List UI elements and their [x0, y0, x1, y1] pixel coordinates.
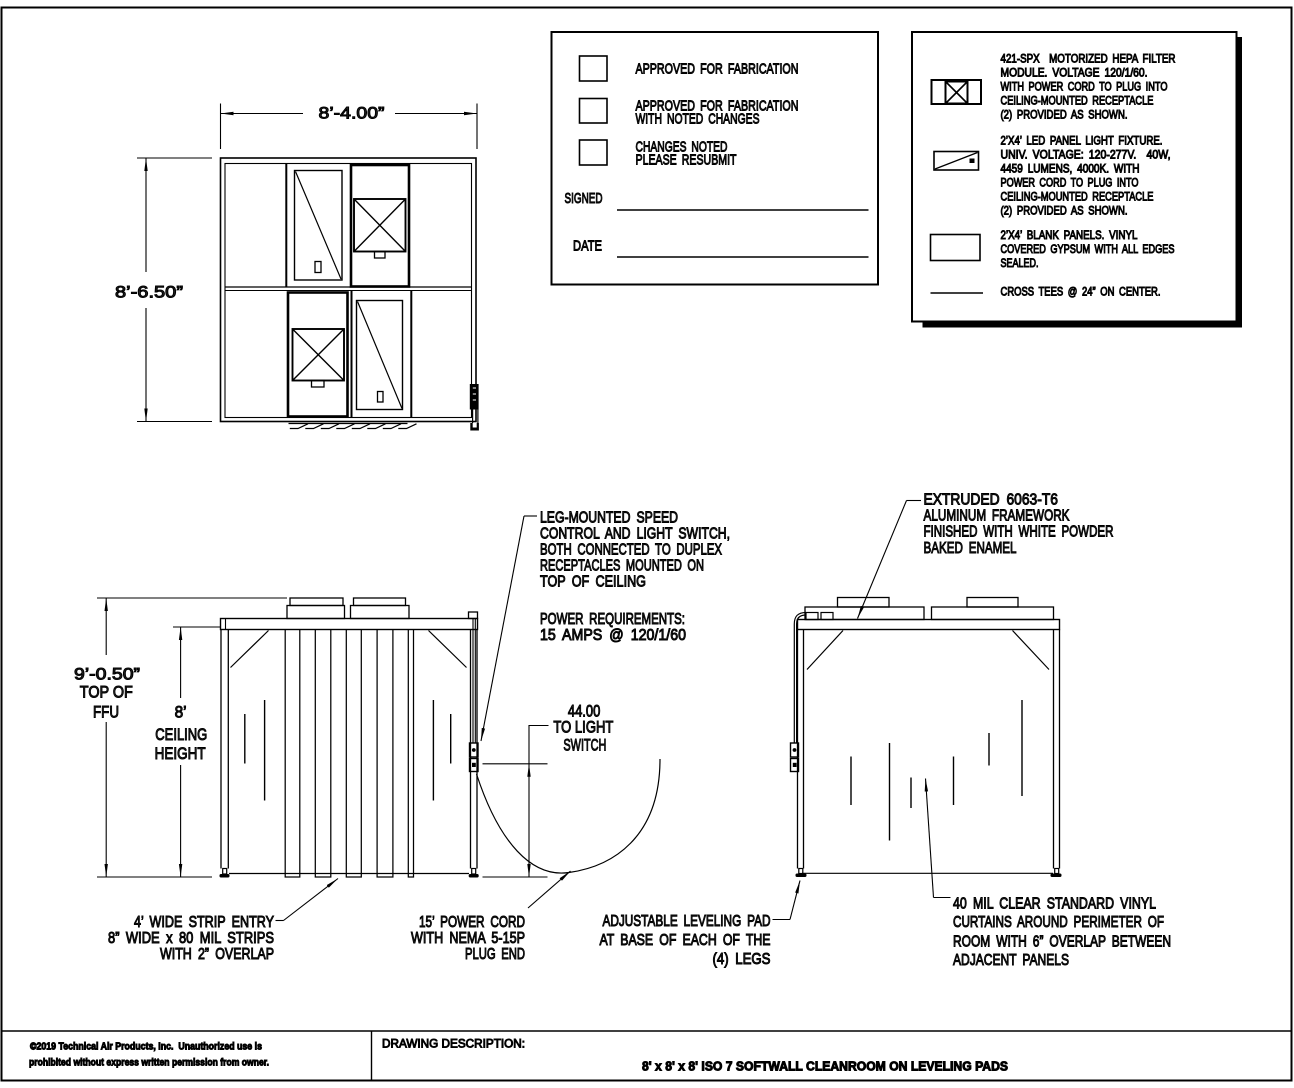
svg-text:PLEASE RESUBMIT: PLEASE RESUBMIT	[636, 152, 737, 169]
svg-text:FFU: FFU	[93, 703, 119, 722]
svg-text:TOP OF CEILING: TOP OF CEILING	[540, 574, 646, 591]
svg-text:POWER REQUIREMENTS:: POWER REQUIREMENTS:	[540, 611, 685, 628]
svg-text:CONTROL AND LIGHT SWITCH,: CONTROL AND LIGHT SWITCH,	[540, 526, 730, 543]
svg-text:15’ POWER CORD: 15’ POWER CORD	[419, 914, 525, 931]
svg-text:RECEPTACLES MOUNTED ON: RECEPTACLES MOUNTED ON	[540, 558, 704, 575]
svg-text:SWITCH: SWITCH	[563, 736, 606, 755]
svg-text:TOP OF: TOP OF	[80, 683, 133, 702]
svg-text:TO LIGHT: TO LIGHT	[553, 718, 613, 737]
svg-text:©2019 Technical Air Products,: ©2019 Technical Air Products, Inc. Unaut…	[30, 1041, 262, 1053]
svg-text:(4) LEGS: (4) LEGS	[713, 951, 771, 968]
svg-text:LEG-MOUNTED SPEED: LEG-MOUNTED SPEED	[540, 510, 678, 527]
svg-text:2’X4’ BLANK PANELS. VINYL: 2’X4’ BLANK PANELS. VINYL	[1001, 228, 1138, 242]
svg-text:SEALED.: SEALED.	[1001, 256, 1039, 270]
svg-text:SIGNED: SIGNED	[565, 190, 603, 207]
svg-text:ROOM WITH 6” OVERLAP BETWEEN: ROOM WITH 6” OVERLAP BETWEEN	[953, 933, 1171, 950]
svg-text:AT BASE OF EACH OF THE: AT BASE OF EACH OF THE	[600, 932, 771, 949]
svg-text:8” WIDE x 80 MIL STRIPS: 8” WIDE x 80 MIL STRIPS	[108, 930, 274, 947]
svg-text:40 MIL CLEAR STANDARD VINYL: 40 MIL CLEAR STANDARD VINYL	[953, 896, 1156, 913]
svg-text:COVERED GYPSUM WITH ALL EDGES: COVERED GYPSUM WITH ALL EDGES	[1001, 242, 1175, 256]
svg-text:ALUMINUM FRAMEWORK: ALUMINUM FRAMEWORK	[924, 508, 1070, 525]
svg-text:MODULE. VOLTAGE 120/1/60.: MODULE. VOLTAGE 120/1/60.	[1001, 66, 1148, 80]
svg-text:POWER CORD TO PLUG INTO: POWER CORD TO PLUG INTO	[1001, 176, 1139, 190]
svg-text:CEILING: CEILING	[155, 725, 207, 744]
svg-text:ADJUSTABLE LEVELING PAD: ADJUSTABLE LEVELING PAD	[603, 913, 771, 930]
svg-text:(2) PROVIDED AS SHOWN.: (2) PROVIDED AS SHOWN.	[1001, 108, 1128, 122]
svg-text:APPROVED FOR FABRICATION: APPROVED FOR FABRICATION	[636, 61, 799, 78]
svg-text:(2) PROVIDED AS SHOWN.: (2) PROVIDED AS SHOWN.	[1001, 204, 1128, 218]
svg-text:421-SPX MOTORIZED HEPA FILTER: 421-SPX MOTORIZED HEPA FILTER	[1001, 52, 1176, 66]
svg-text:EXTRUDED 6063-T6: EXTRUDED 6063-T6	[924, 492, 1059, 509]
svg-text:CEILING-MOUNTED RECEPTACLE: CEILING-MOUNTED RECEPTACLE	[1001, 94, 1154, 108]
svg-text:8’: 8’	[175, 703, 187, 722]
svg-text:CEILING-MOUNTED RECEPTACLE: CEILING-MOUNTED RECEPTACLE	[1001, 190, 1154, 204]
svg-text:8’-4.00”: 8’-4.00”	[319, 104, 385, 123]
svg-text:FINISHED WITH WHITE POWDER: FINISHED WITH WHITE POWDER	[924, 524, 1114, 541]
svg-text:WITH 2” OVERLAP: WITH 2” OVERLAP	[160, 946, 274, 963]
svg-text:4459 LUMENS, 4000K. WITH: 4459 LUMENS, 4000K. WITH	[1001, 162, 1140, 176]
svg-text:DRAWING DESCRIPTION:: DRAWING DESCRIPTION:	[382, 1037, 525, 1051]
svg-text:15 AMPS @ 120/1/60: 15 AMPS @ 120/1/60	[540, 627, 686, 644]
svg-text:2’X4’ LED PANEL LIGHT FIXTURE.: 2’X4’ LED PANEL LIGHT FIXTURE.	[1001, 134, 1163, 148]
svg-text:WITH NEMA 5-15P: WITH NEMA 5-15P	[411, 930, 525, 947]
svg-text:8’-6.50”: 8’-6.50”	[115, 283, 183, 302]
svg-text:BAKED ENAMEL: BAKED ENAMEL	[924, 540, 1017, 557]
svg-text:CROSS TEES @ 24” ON CENTER.: CROSS TEES @ 24” ON CENTER.	[1001, 285, 1161, 299]
svg-text:HEIGHT: HEIGHT	[155, 744, 206, 763]
svg-text:ADJACENT PANELS: ADJACENT PANELS	[953, 952, 1069, 969]
svg-text:CURTAINS AROUND PERIMETER OF: CURTAINS AROUND PERIMETER OF	[953, 914, 1164, 931]
svg-text:9’-0.50”: 9’-0.50”	[74, 665, 140, 684]
svg-text:DATE: DATE	[573, 238, 602, 255]
svg-text:4’ WIDE STRIP ENTRY: 4’ WIDE STRIP ENTRY	[134, 914, 274, 931]
svg-text:BOTH CONNECTED TO DUPLEX: BOTH CONNECTED TO DUPLEX	[540, 542, 722, 559]
svg-text:8' x 8' x 8' ISO 7 SOFTWALL CL: 8' x 8' x 8' ISO 7 SOFTWALL CLEANROOM ON…	[642, 1059, 1008, 1074]
svg-text:UNIV. VOLTAGE: 120-277V. 40W,: UNIV. VOLTAGE: 120-277V. 40W,	[1001, 148, 1171, 162]
svg-text:PLUG END: PLUG END	[465, 946, 525, 963]
svg-text:WITH POWER CORD TO PLUG INTO: WITH POWER CORD TO PLUG INTO	[1001, 80, 1168, 94]
svg-text:prohibited without express wri: prohibited without express written permi…	[29, 1057, 269, 1069]
svg-text:WITH NOTED CHANGES: WITH NOTED CHANGES	[636, 111, 760, 128]
